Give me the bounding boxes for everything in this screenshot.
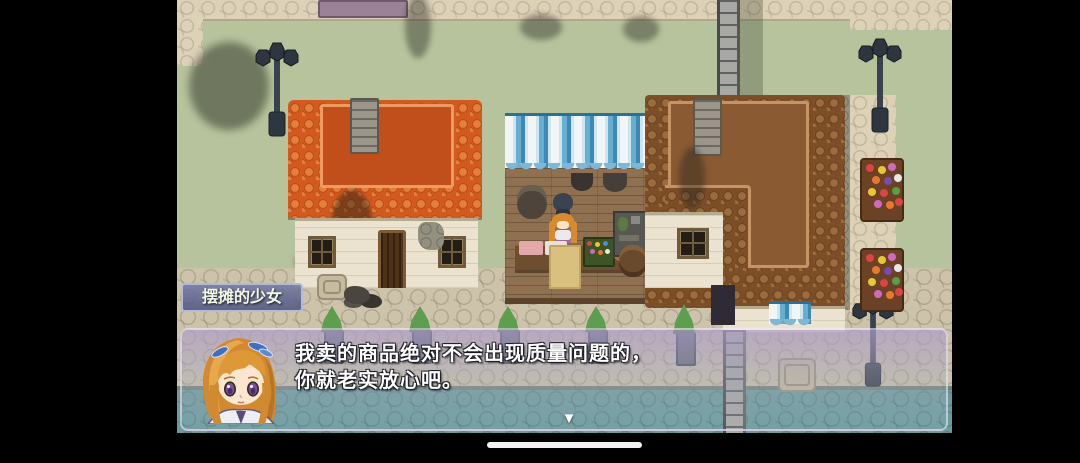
dark-doorway bbox=[711, 285, 735, 325]
chimney bbox=[350, 98, 379, 154]
stall-girl-portrait bbox=[196, 337, 281, 424]
market-stall bbox=[505, 113, 645, 298]
bottom-black-bar bbox=[0, 433, 1080, 463]
stone-rug bbox=[318, 0, 408, 18]
dialogue-line-2: 你就老实放心吧。 bbox=[295, 364, 463, 393]
flower-stand-bottom bbox=[860, 248, 904, 312]
awning-scallop bbox=[505, 163, 645, 172]
goods-crate bbox=[583, 237, 615, 267]
continue-arrow-icon[interactable]: ▼ bbox=[558, 411, 580, 427]
stone-plate bbox=[317, 274, 347, 300]
house-door bbox=[378, 230, 406, 288]
hanging-pot-2 bbox=[603, 173, 627, 192]
smoke-wisp bbox=[405, 0, 431, 58]
small-awning-scallop bbox=[769, 319, 811, 327]
barrel-left bbox=[517, 185, 547, 219]
brown-roof-house bbox=[645, 95, 845, 330]
dialogue-line-1: 我卖的商品绝对不会出现质量问题的， bbox=[295, 337, 652, 366]
chimney-smoke bbox=[679, 147, 705, 209]
game-viewport[interactable]: 我卖的商品绝对不会出现质量问题的， 你就老实放心吧。 摆摊的少女 ▼ bbox=[177, 0, 952, 433]
pipe-shadow bbox=[737, 0, 763, 100]
top-right-path bbox=[850, 0, 952, 30]
home-indicator[interactable] bbox=[487, 442, 642, 448]
wall-patch bbox=[418, 222, 444, 250]
speaker-name-tag: 摆摊的少女 bbox=[181, 283, 303, 312]
brown-chimney bbox=[693, 98, 722, 156]
barrel-right bbox=[619, 245, 647, 277]
pink-cloth bbox=[519, 241, 543, 255]
street-lamp-left bbox=[255, 42, 299, 138]
window-left bbox=[308, 236, 336, 268]
hanging-pot-1 bbox=[571, 173, 593, 191]
flower-stand-top bbox=[860, 158, 904, 222]
street-lamp-right-top bbox=[858, 38, 902, 134]
orange-roof-panel bbox=[320, 104, 454, 188]
grass-smudge-2 bbox=[623, 16, 659, 42]
tan-cloth bbox=[549, 245, 581, 289]
brown-house-window bbox=[677, 228, 709, 259]
orange-roof-house bbox=[288, 98, 482, 285]
top-path bbox=[177, 0, 952, 21]
rubble-pile bbox=[344, 286, 370, 304]
stall-awning bbox=[505, 113, 645, 168]
grass-smudge-1 bbox=[520, 14, 562, 40]
